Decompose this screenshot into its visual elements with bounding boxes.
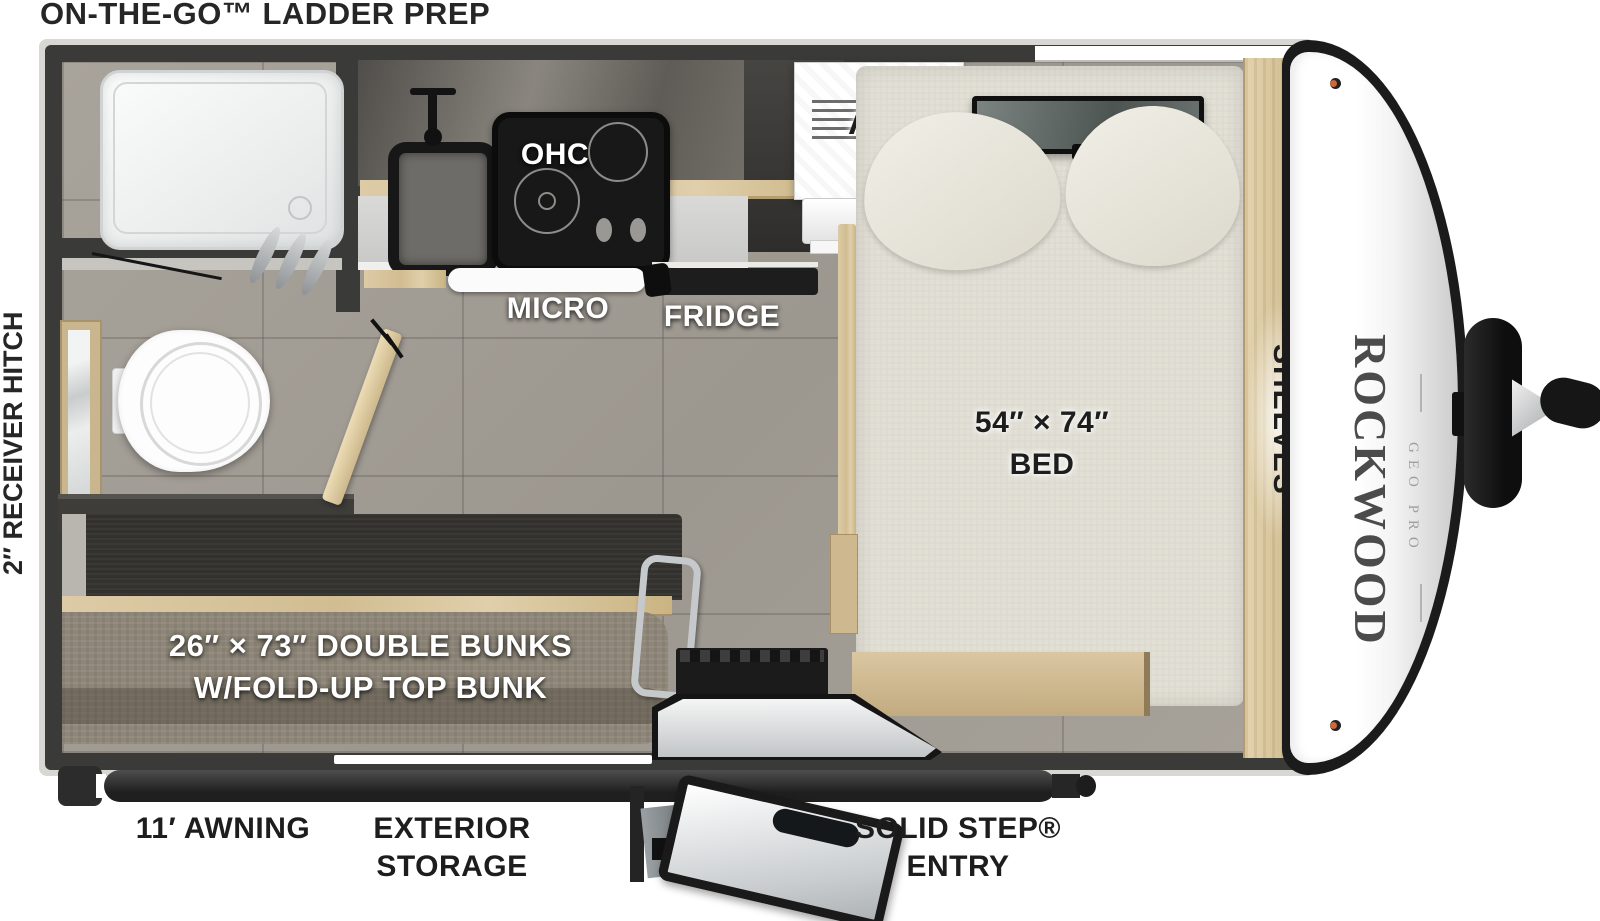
- solid-step-label-line1: SOLID STEP®: [828, 812, 1088, 846]
- bed-label: BED: [857, 448, 1227, 482]
- solid-step-post: [630, 786, 644, 882]
- microwave: [448, 268, 646, 292]
- shower-drain-icon: [288, 196, 312, 220]
- rv-floorplan-diagram: ON-THE-GO™ LADDER PREP 2″ RECEIVER HITCH: [0, 0, 1600, 921]
- exterior-storage-label-line2: STORAGE: [352, 850, 552, 884]
- bed-base-bench: [852, 652, 1150, 716]
- burner-center-icon: [538, 192, 556, 210]
- exterior-storage-label-line1: EXTERIOR: [352, 812, 552, 846]
- bathroom-window-glass: [68, 330, 90, 496]
- awning-label: 11′ AWNING: [108, 812, 338, 846]
- awning-roller: [104, 770, 1056, 802]
- brand-rule-icon: [1420, 374, 1422, 412]
- bed-size-label: 54″ × 74″: [857, 406, 1227, 440]
- entry-step-treads-icon: [680, 650, 824, 662]
- fridge-front: [652, 268, 818, 295]
- hitch-handle-icon: [1535, 373, 1600, 434]
- faucet-base-icon: [424, 128, 442, 146]
- knob-icon: [630, 218, 646, 242]
- storage-door-strip: [334, 755, 652, 764]
- brand-sub: GEO PRO: [1404, 420, 1421, 576]
- solid-step-label-line2: ENTRY: [828, 850, 1088, 884]
- fridge-label: FRIDGE: [622, 300, 822, 334]
- bed-side-block: [830, 534, 858, 634]
- knob-icon: [596, 218, 612, 242]
- rivet-icon: [1330, 78, 1341, 89]
- bunks-label-line2: W/FOLD-UP TOP BUNK: [88, 670, 653, 706]
- shower-bottom-ledge: [62, 258, 342, 270]
- ohc-label: OHC: [470, 138, 640, 172]
- page-title: ON-THE-GO™ LADDER PREP: [40, 0, 490, 32]
- awning-knob-icon: [1076, 775, 1096, 797]
- brand-rule-icon: [1420, 584, 1422, 622]
- receiver-hitch-label: 2″ RECEIVER HITCH: [0, 228, 38, 658]
- bed-side-rail: [838, 224, 856, 536]
- cabinet-strip: [364, 270, 446, 288]
- bunk-folded-top: [86, 514, 682, 600]
- toilet-seat-inner-ring: [150, 352, 250, 454]
- faucet-handle-icon: [410, 88, 456, 95]
- rivet-icon: [1330, 720, 1341, 731]
- bunks-label-line1: 26″ × 73″ DOUBLE BUNKS: [88, 628, 653, 664]
- fridge-top-line: [652, 262, 818, 267]
- brand-name: ROCKWOOD: [1344, 322, 1397, 658]
